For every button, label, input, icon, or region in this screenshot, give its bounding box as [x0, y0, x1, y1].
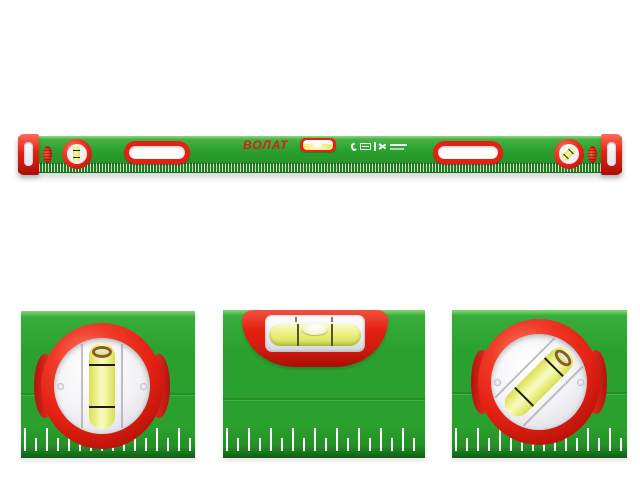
tick-row-short	[226, 438, 422, 451]
round-vial-right	[554, 139, 584, 169]
brand-logo: ВОЛАТ	[243, 138, 289, 152]
mount-line	[121, 344, 123, 428]
bubble	[314, 143, 322, 147]
closeup-left-panel	[21, 311, 195, 458]
spec-markings	[351, 141, 407, 152]
spec-text-lines	[390, 144, 407, 150]
graduation-line	[331, 324, 333, 346]
screw-left	[494, 379, 501, 386]
end-cap-slot	[24, 142, 33, 166]
vial-tube	[73, 146, 80, 162]
groove-line	[223, 398, 425, 400]
end-cap-left	[18, 134, 39, 175]
graduation-line	[297, 324, 299, 346]
ruler-ticks	[226, 428, 422, 451]
vial-housing	[35, 321, 169, 451]
closeup-center-panel	[223, 310, 425, 458]
screw-right	[140, 383, 147, 390]
screw-left	[57, 383, 64, 390]
spec-text-line	[390, 148, 404, 150]
mount-line	[81, 344, 83, 428]
vial-lens	[54, 338, 150, 434]
vial-tube	[560, 146, 576, 162]
handle-cutout-right	[433, 141, 503, 164]
vial-lens	[491, 334, 587, 430]
closeup-right-panel	[452, 310, 627, 458]
bubble	[302, 324, 328, 335]
end-cap-slot	[607, 142, 616, 166]
vial-group-rotated	[491, 334, 587, 430]
vial-glass	[559, 144, 579, 164]
screw-right	[577, 379, 584, 386]
vial-cradle	[242, 310, 388, 367]
window-mark	[331, 317, 333, 322]
spec-box-icon	[360, 143, 371, 150]
grip-knob-left	[43, 146, 52, 163]
ruler-edge	[39, 163, 601, 172]
spec-text-line	[390, 144, 407, 146]
handle-cutout-left	[124, 141, 190, 164]
horizontal-vial	[300, 138, 336, 152]
spirit-level-bar: ВОЛАТ	[18, 136, 622, 173]
bubble	[92, 346, 112, 358]
vial-group	[54, 338, 150, 434]
product-photo: ВОЛАТ	[0, 0, 640, 480]
graduation-line	[89, 364, 115, 366]
divider-icon	[374, 142, 376, 151]
round-vial-left	[62, 139, 92, 169]
angle-marks-icon	[379, 142, 387, 151]
handset-icon	[350, 142, 358, 151]
window-mark	[295, 317, 297, 322]
vial-window	[265, 315, 365, 352]
graduation-line	[89, 406, 115, 408]
vial-housing	[472, 317, 606, 447]
vial-glass	[67, 144, 87, 164]
vial-tube	[269, 324, 361, 346]
grip-knob-right	[588, 146, 597, 163]
end-cap-right	[601, 134, 622, 175]
